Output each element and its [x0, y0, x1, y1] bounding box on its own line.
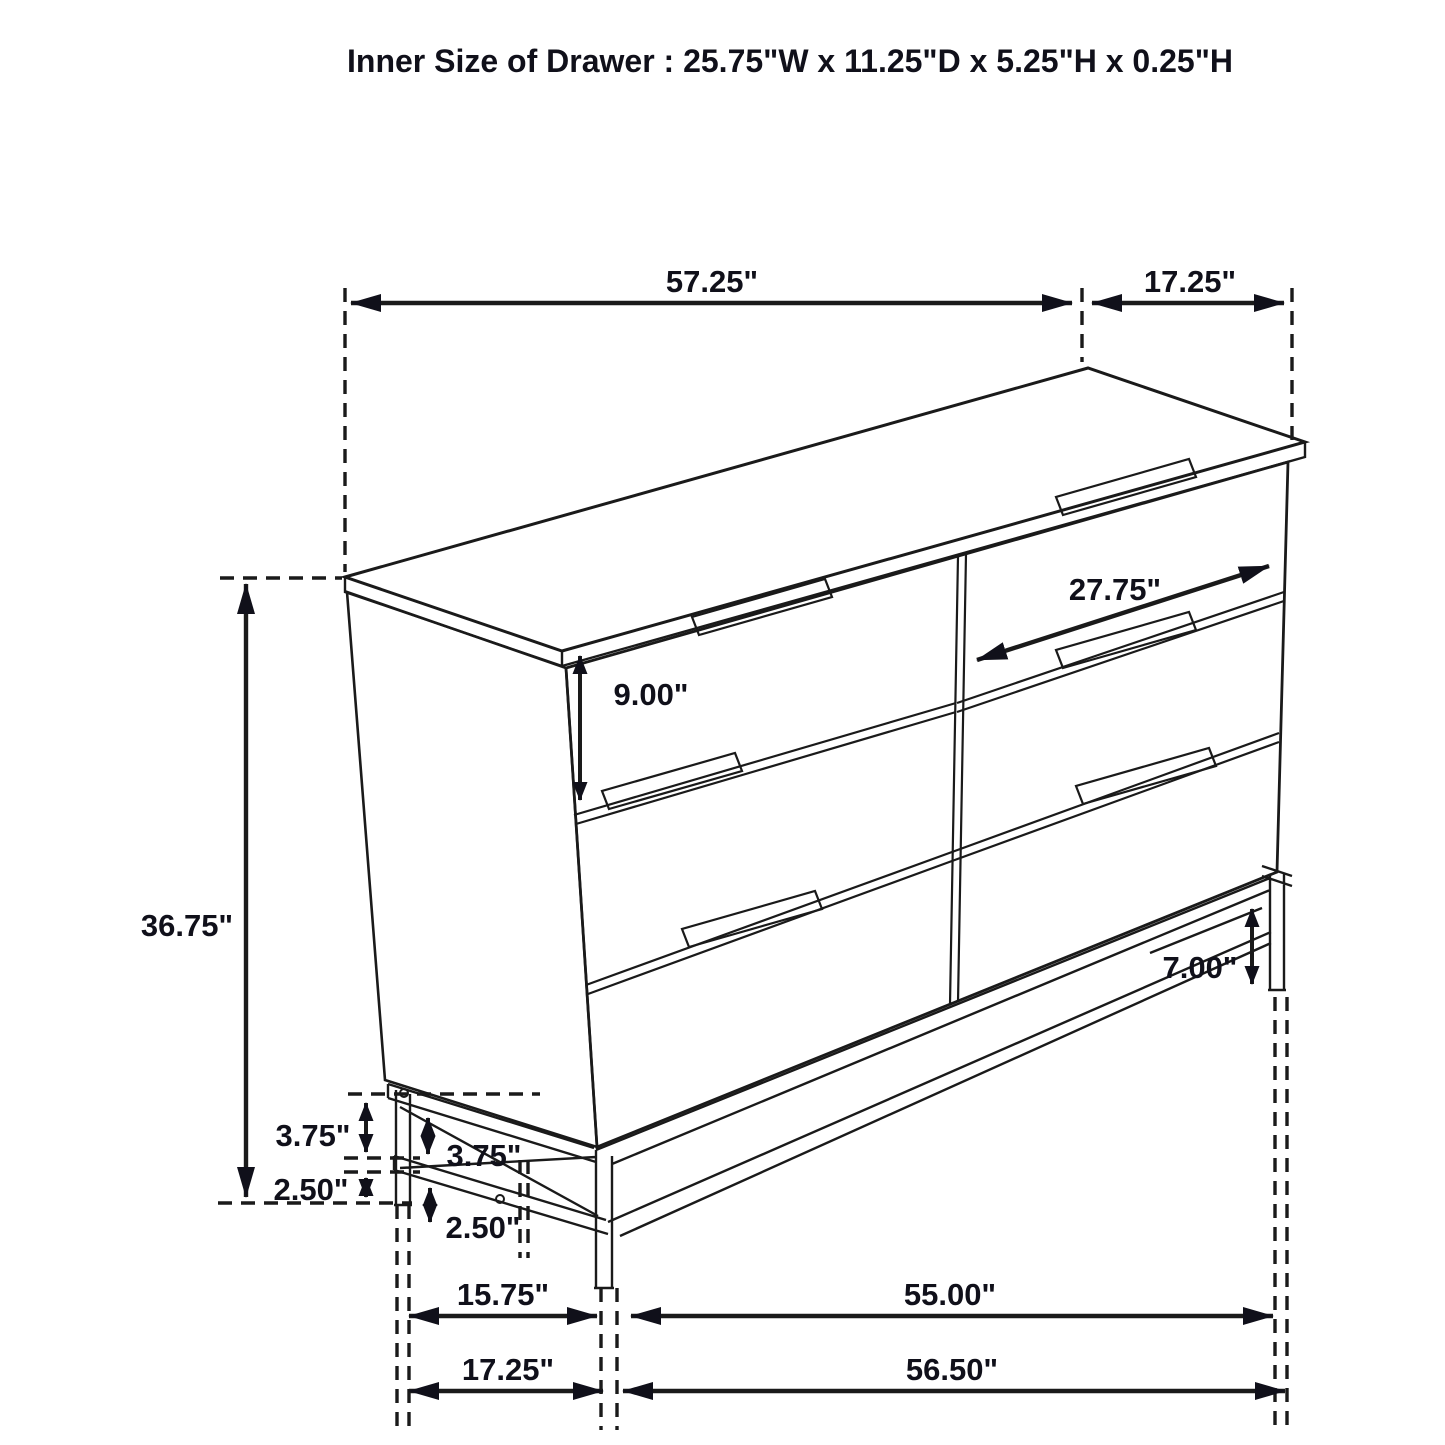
diagram-title: Inner Size of Drawer : 25.75"W x 11.25"D… [347, 43, 1233, 79]
label-leg-span-side-inner: 15.75" [457, 1277, 549, 1312]
dresser-dimension-diagram: Inner Size of Drawer : 25.75"W x 11.25"D… [0, 0, 1445, 1445]
base-frame [388, 866, 1292, 1288]
dresser-front-face [566, 462, 1288, 1147]
label-rail-height-side: 3.75" [275, 1118, 350, 1153]
dimension-extension-lines [218, 288, 1292, 1430]
drawer-column-divider [950, 554, 966, 1004]
dashed-extension-lines [218, 288, 1292, 1430]
label-base-height-right: 7.00" [1162, 950, 1237, 985]
dresser-top-face [345, 368, 1305, 651]
label-top-width: 57.25" [666, 264, 758, 299]
label-leg-lower-front: 2.50" [445, 1210, 520, 1245]
drawer-row-separators [574, 592, 1284, 994]
dimension-arrows [246, 303, 1285, 1391]
dresser-left-side-panel [347, 592, 597, 1147]
label-base-width-outer: 56.50" [906, 1352, 998, 1387]
label-leg-lower-side: 2.50" [273, 1172, 348, 1207]
drawer-handles [602, 459, 1216, 947]
label-drawer-width: 27.75" [1069, 572, 1161, 607]
label-leg-span-front-inner: 55.00" [904, 1277, 996, 1312]
label-drawer-front-height: 9.00" [613, 677, 688, 712]
furniture-dimension-sheet: Inner Size of Drawer : 25.75"W x 11.25"D… [0, 0, 1445, 1445]
label-overall-height: 36.75" [141, 908, 233, 943]
label-base-depth-outer: 17.25" [462, 1352, 554, 1387]
dresser-top-edge-thickness [345, 442, 1305, 666]
label-rail-height-front: 3.75" [446, 1138, 521, 1173]
label-top-depth: 17.25" [1144, 264, 1236, 299]
